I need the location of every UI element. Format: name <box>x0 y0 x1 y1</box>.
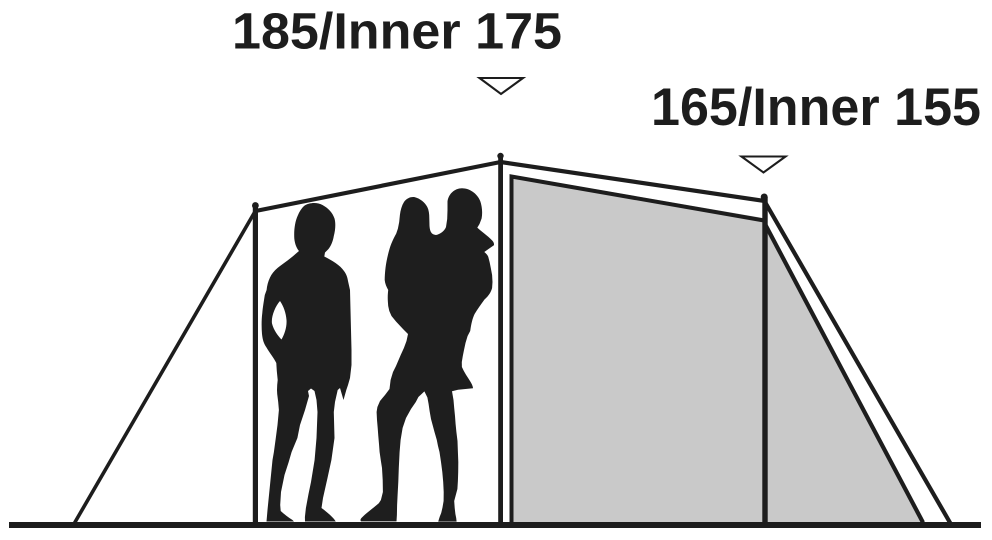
svg-text:185/Inner 175: 185/Inner 175 <box>232 3 562 60</box>
svg-text:165/Inner 155: 165/Inner 155 <box>651 78 981 137</box>
